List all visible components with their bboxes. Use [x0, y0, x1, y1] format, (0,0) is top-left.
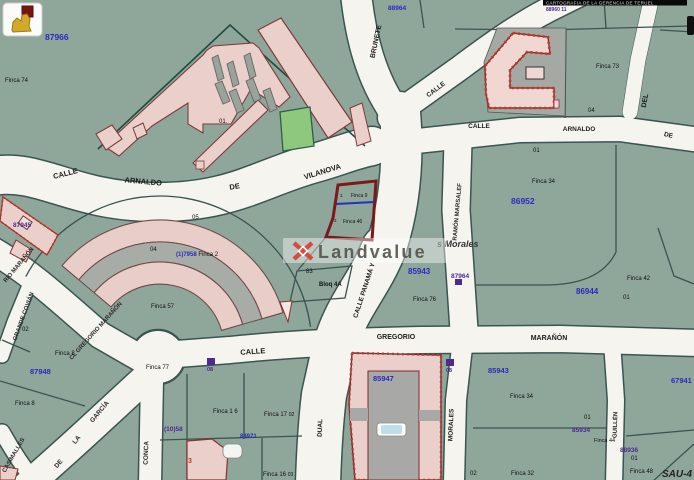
svg-text:Finca 76: Finca 76	[413, 297, 437, 303]
svg-text:Finca 16 03: Finca 16 03	[263, 472, 293, 478]
svg-text:08: 08	[207, 367, 213, 373]
svg-text:87948: 87948	[30, 367, 51, 376]
svg-text:DUAL: DUAL	[317, 419, 325, 437]
svg-text:08: 08	[446, 368, 452, 374]
svg-text:Finca 42: Finca 42	[627, 276, 651, 282]
svg-text:MARAÑÓN: MARAÑÓN	[531, 333, 568, 342]
svg-text:85943: 85943	[488, 366, 509, 375]
svg-text:02: 02	[22, 327, 29, 333]
svg-text:ARNALDO: ARNALDO	[563, 126, 596, 133]
svg-text:87966: 87966	[45, 32, 69, 42]
svg-text:Finca 17 02: Finca 17 02	[264, 412, 294, 418]
svg-text:Finca 73: Finca 73	[596, 64, 620, 70]
svg-text:88964: 88964	[388, 5, 406, 12]
svg-text:Finca 44: Finca 44	[594, 438, 615, 444]
svg-text:Finca 34: Finca 34	[510, 394, 534, 400]
svg-text:04: 04	[150, 247, 157, 253]
svg-text:Finca 74: Finca 74	[5, 78, 29, 84]
svg-text:DE: DE	[229, 181, 241, 192]
svg-text:3: 3	[188, 458, 192, 465]
svg-text:Finca 34: Finca 34	[532, 179, 556, 185]
svg-text:01.: 01.	[219, 119, 228, 125]
svg-text:87945: 87945	[13, 222, 31, 229]
svg-text:01: 01	[584, 415, 591, 421]
svg-text:Finca 77: Finca 77	[146, 365, 170, 371]
svg-text:85947: 85947	[373, 374, 394, 383]
svg-text:Finca 8: Finca 8	[15, 401, 35, 407]
svg-text:Bloq 4A: Bloq 4A	[319, 282, 342, 288]
svg-text:CONCA: CONCA	[143, 441, 151, 465]
svg-text:CALLE: CALLE	[240, 346, 266, 357]
svg-text:84971: 84971	[240, 434, 257, 440]
svg-text:(1)7958 Finca 2: (1)7958 Finca 2	[176, 252, 219, 258]
svg-text:85934: 85934	[572, 427, 590, 434]
svg-text:88936: 88936	[620, 447, 638, 454]
svg-text:Finca 8: Finca 8	[55, 351, 75, 357]
svg-text:MORALES: MORALES	[447, 408, 455, 441]
svg-text:86952: 86952	[511, 196, 535, 206]
svg-text:Finca 46: Finca 46	[343, 219, 362, 225]
svg-text:05: 05	[192, 215, 199, 221]
svg-text:GREGORIO: GREGORIO	[377, 334, 416, 341]
svg-text:88960 11: 88960 11	[546, 7, 567, 13]
svg-text:CARTOGRAFIA DE LA GERENCIA DE: CARTOGRAFIA DE LA GERENCIA DE TERUEL	[546, 1, 654, 6]
svg-text:01: 01	[631, 456, 638, 462]
svg-text:87964: 87964	[451, 273, 469, 280]
svg-text:Landvalue: Landvalue	[318, 242, 427, 262]
svg-text:SAU-4: SAU-4	[662, 469, 692, 480]
svg-text:02: 02	[470, 471, 477, 477]
svg-text:Finca 9: Finca 9	[351, 193, 368, 199]
svg-text:Finca 57: Finca 57	[151, 304, 175, 310]
svg-text:86944: 86944	[576, 287, 599, 296]
svg-text:Finca 48: Finca 48	[630, 469, 654, 475]
svg-text:85943: 85943	[408, 267, 431, 276]
svg-text:CALLE: CALLE	[468, 123, 490, 130]
svg-text:01: 01	[623, 295, 630, 301]
svg-text:(10)58: (10)58	[164, 426, 183, 433]
svg-text:Finca 1 6: Finca 1 6	[213, 409, 238, 415]
svg-text:04: 04	[588, 108, 595, 114]
svg-text:Finca 32: Finca 32	[511, 471, 535, 477]
svg-text:67941: 67941	[671, 376, 692, 385]
svg-text:83: 83	[306, 269, 313, 275]
svg-text:01: 01	[533, 148, 540, 154]
